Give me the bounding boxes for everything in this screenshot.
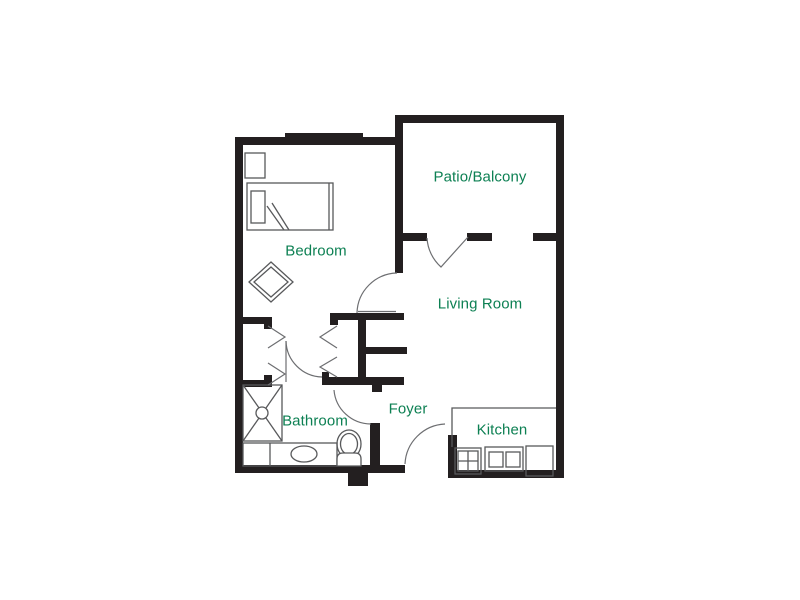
wall-niche-middle xyxy=(366,347,407,354)
wall-patio-bottom-left xyxy=(395,233,427,241)
wall-hall-top xyxy=(330,313,404,320)
wall-bedroom-living-divider xyxy=(395,115,403,273)
armchair-symbol-inner xyxy=(254,267,288,297)
room-label-patio-balcony: Patio/Balcony xyxy=(433,169,526,186)
room-label-kitchen: Kitchen xyxy=(477,422,528,439)
closet-left-door-upper xyxy=(268,326,285,348)
room-label-living-room: Living Room xyxy=(438,296,522,313)
closet-right-door-upper xyxy=(320,326,337,348)
bedroom-furniture xyxy=(245,153,333,302)
wall-patio-top xyxy=(395,115,564,123)
wall-bath-foyer-lower xyxy=(370,423,380,465)
wall-foyer-top-cap xyxy=(322,372,329,377)
kitchen-fixtures xyxy=(452,408,556,476)
wall-left-outer xyxy=(235,137,243,473)
bedroom-window xyxy=(285,133,363,145)
entry-pier xyxy=(348,472,368,486)
shower-drain xyxy=(256,407,268,419)
armchair-symbol xyxy=(249,262,293,302)
toilet-tank-symbol xyxy=(337,453,361,466)
sink-basin-left xyxy=(489,452,503,467)
room-label-bedroom: Bedroom xyxy=(285,243,347,260)
wall-right-outer xyxy=(556,115,564,478)
floor-plan: Patio/Balcony Bedroom Living Room Foyer … xyxy=(0,0,800,600)
wall-closet-left-bottom-cap xyxy=(264,375,272,380)
sink-basin-right xyxy=(506,452,520,467)
toilet-bowl-inner xyxy=(341,434,358,455)
bedroom-door-swing xyxy=(357,273,397,313)
wall-closet-left-top xyxy=(243,317,272,324)
floor-plan-drawing xyxy=(0,0,800,600)
wall-hall-top-cap xyxy=(330,320,338,325)
wall-patio-bottom-right xyxy=(533,233,556,241)
patio-door-swing xyxy=(427,237,468,267)
wall-closet-right-spine xyxy=(358,320,366,383)
room-label-foyer: Foyer xyxy=(389,401,428,418)
hall-door-swing xyxy=(286,341,322,377)
nightstand-symbol xyxy=(245,153,265,178)
room-label-bathroom: Bathroom xyxy=(282,413,348,430)
wall-patio-bottom-middle xyxy=(467,233,492,241)
wall-foyer-top xyxy=(322,377,404,385)
pillow-symbol xyxy=(251,191,265,223)
vanity-symbol xyxy=(243,443,337,466)
vanity-sink-symbol xyxy=(291,446,317,462)
wall-closet-left-bottom xyxy=(243,380,272,387)
wall-bath-foyer-pier xyxy=(372,385,382,392)
entry-door-swing xyxy=(405,424,445,464)
